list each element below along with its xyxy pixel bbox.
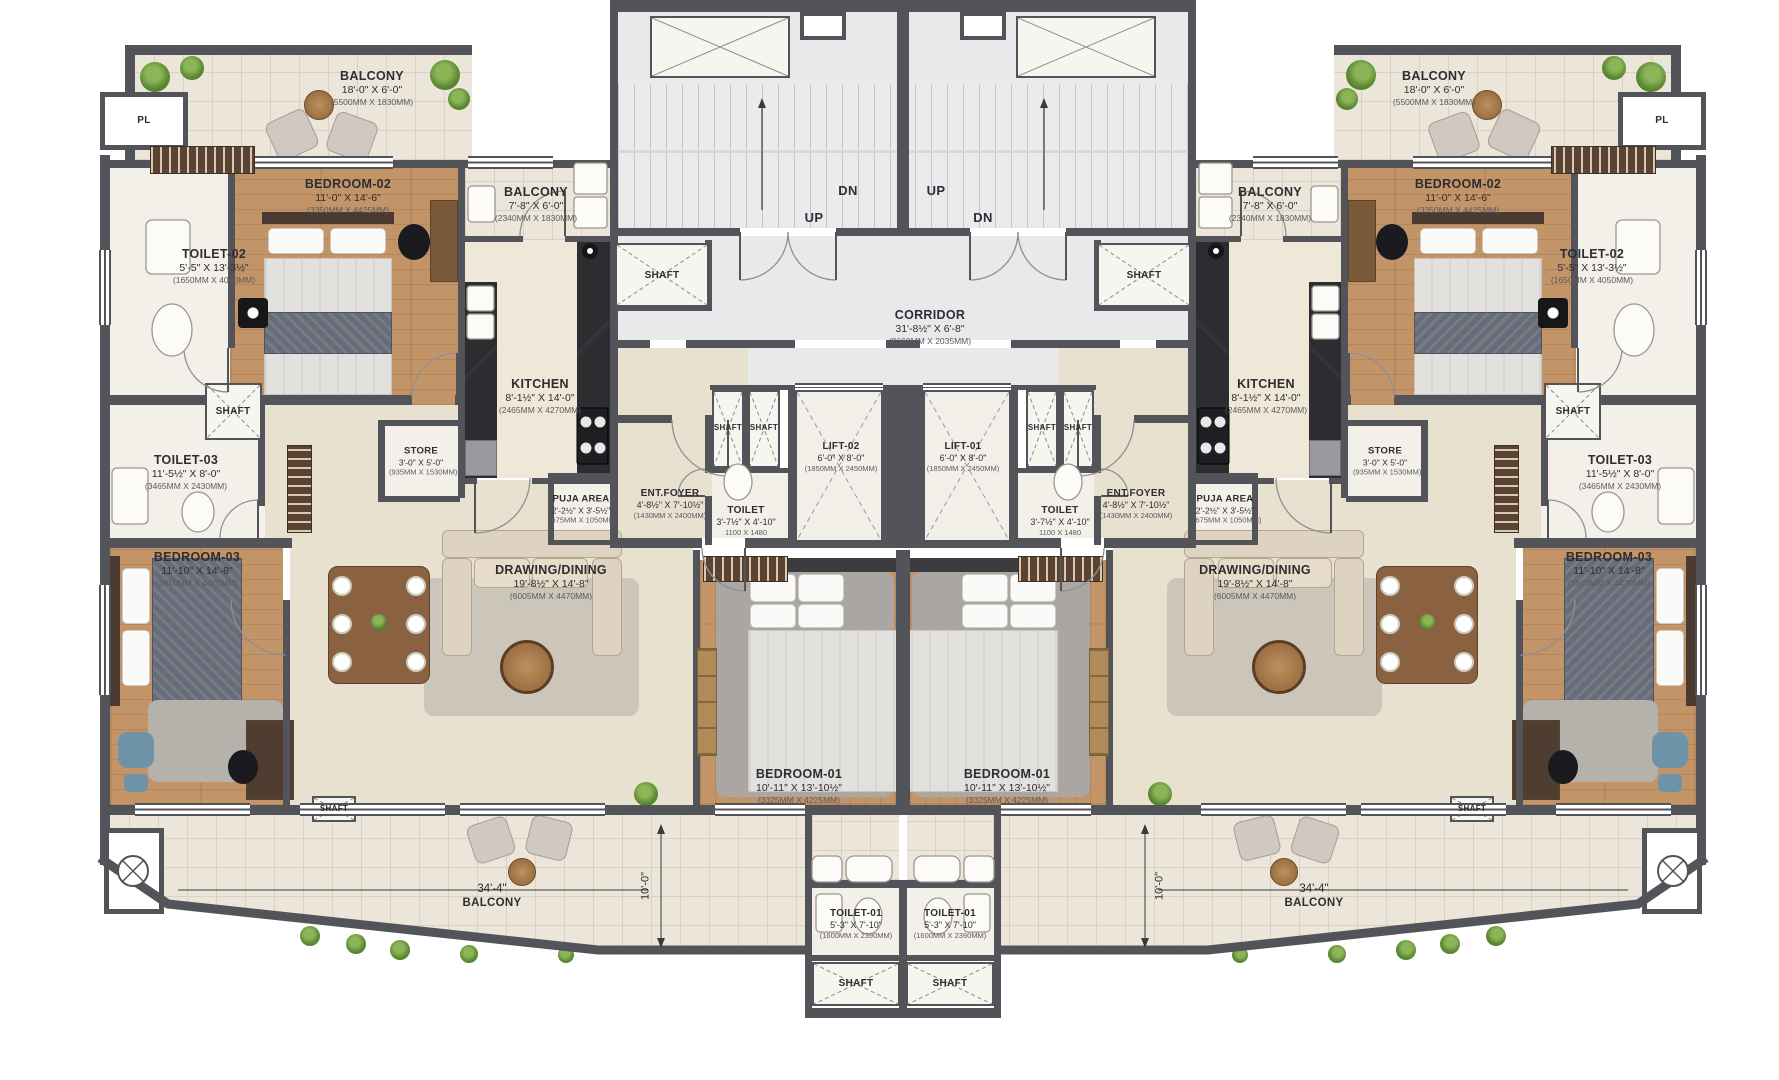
plate (332, 614, 352, 634)
window (460, 803, 605, 816)
wall (1329, 478, 1341, 484)
wall (1194, 473, 1253, 478)
wall (805, 1008, 903, 1018)
room-dims: 5'-5" X 13'-3½" (1551, 262, 1633, 275)
room-name: SHAFT (216, 406, 251, 418)
centerpiece (1419, 614, 1435, 630)
patio-floor (907, 815, 994, 880)
label-depth-dim: 10'-0" (1153, 872, 1166, 900)
label-bedroom3: BEDROOM-0311'-10" X 14'-8"(3610MM X 4470… (154, 550, 240, 588)
pillow (1656, 630, 1684, 686)
room-mm: (6005MM X 4470MM) (1199, 591, 1311, 601)
label-toilet3: TOILET-0311'-5½" X 8'-0"(3465MM X 2430MM… (145, 453, 227, 491)
room-mm: (1430MM X 2400MM) (1100, 511, 1173, 520)
desk-chair (228, 750, 258, 784)
plant (430, 60, 460, 90)
round-table (304, 90, 334, 120)
room-dims: 11'-5½" X 8'-0" (1579, 468, 1661, 481)
room-name: TOILET-02 (173, 247, 255, 262)
wall (1514, 538, 1706, 548)
room-name: KITCHEN (499, 377, 581, 392)
apartment-unit: BALCONY18'-0" X 6'-0"(5500MM X 1830MM) B… (0, 0, 903, 1080)
room-name: SHAFT (645, 270, 680, 282)
label-shaft-small: SHAFT (750, 423, 778, 433)
machine-box (800, 12, 846, 40)
room-mm: (3325MM X 4225MM) (756, 795, 842, 805)
room-dims: 10'-11" X 13'-10½" (964, 782, 1050, 795)
room-dims: 8'-1½" X 14'-0" (1225, 392, 1307, 405)
wall (1066, 228, 1188, 236)
room-dims: 8'-1½" X 14'-0" (499, 392, 581, 405)
wall (710, 468, 790, 473)
room-name: TOILET-01 (914, 908, 987, 920)
plate (332, 652, 352, 672)
room-name: PUJA AREA (1193, 493, 1257, 505)
stair-treads (618, 84, 897, 228)
lobby-floor (748, 348, 903, 388)
pillow (962, 604, 1008, 628)
stair-mid-landing (909, 150, 1188, 153)
wardrobe (1018, 556, 1103, 582)
bed-throw (1414, 312, 1542, 354)
plate (332, 576, 352, 596)
wall (903, 0, 909, 235)
bush (1440, 934, 1460, 954)
bush (460, 945, 478, 963)
wall (805, 815, 812, 1015)
plant (1346, 60, 1376, 90)
label-shaft-corridor: SHAFT (1127, 270, 1162, 282)
room-dims: 7'-8" X 6'-0" (495, 200, 577, 213)
bed-throw (264, 312, 392, 354)
wall (465, 236, 523, 242)
window (1413, 156, 1568, 169)
room-mm: (6005MM X 4470MM) (495, 591, 607, 601)
room-name: BALCONY (331, 69, 413, 84)
wardrobe (150, 146, 255, 174)
wall (903, 1008, 1001, 1018)
room-dims: 3'-0" X 5'-0" (389, 457, 453, 467)
wall (785, 0, 903, 10)
lift-cabin (795, 390, 883, 542)
plant (1636, 62, 1666, 92)
room-name: BEDROOM-02 (305, 177, 391, 192)
label-ent-foyer: ENT.FOYER4'-8½" X 7'-10½"(1430MM X 2400M… (634, 488, 707, 520)
label-store: STORE3'-0" X 5'-0"(935MM X 1530MM) (1353, 445, 1417, 476)
room-name: BEDROOM-01 (756, 767, 842, 782)
room-name: TOILET (1030, 505, 1089, 517)
room-name: PUJA AREA (549, 493, 613, 505)
wall (1421, 420, 1428, 502)
label-pl: PL (137, 115, 150, 127)
bush (558, 947, 574, 963)
label-shaft-small: SHAFT (1028, 423, 1056, 433)
pillow (750, 604, 796, 628)
room-mm: (675MM X 1050MM) (1193, 515, 1257, 524)
room-mm: (3350MM X 4425MM) (1415, 205, 1501, 215)
pillow (1482, 228, 1538, 254)
room-name: SHAFT (1458, 804, 1486, 814)
plate (406, 614, 426, 634)
label-shaft-toilet3: SHAFT (1556, 406, 1591, 418)
label-shaft-balcony: SHAFT (1458, 804, 1486, 814)
room-name: SHAFT (933, 978, 968, 990)
bush (300, 926, 320, 946)
pillow (1010, 604, 1056, 628)
room-mm: (3350MM X 4425MM) (305, 205, 391, 215)
wall (618, 228, 740, 236)
wall (903, 340, 920, 348)
label-shaft-bottom: SHAFT (933, 978, 968, 990)
room-name: DRAWING/DINING (1199, 563, 1311, 578)
wall (903, 0, 1021, 10)
wall (458, 160, 465, 480)
wall (897, 0, 903, 235)
room-name: BEDROOM-03 (154, 550, 240, 565)
label-puja: PUJA AREA2'-2½" X 3'-5½"(675MM X 1050MM) (1193, 493, 1257, 524)
bush (346, 934, 366, 954)
wall (1196, 236, 1241, 242)
stair-landing (650, 16, 790, 78)
duct-box (1642, 828, 1702, 914)
label-bedroom1: BEDROOM-0110'-11" X 13'-10½"(3325MM X 42… (964, 767, 1050, 805)
plate (1454, 652, 1474, 672)
wall (1283, 236, 1341, 242)
wall (903, 228, 970, 236)
wall (1134, 415, 1196, 423)
wall (1194, 540, 1253, 545)
label-depth-dim: 10'-0" (639, 872, 652, 900)
sliding-wardrobe (1089, 648, 1109, 756)
room-name: BALCONY (463, 896, 522, 910)
label-shaft-small: SHAFT (714, 423, 742, 433)
room-name: BALCONY (1285, 896, 1344, 910)
lobby-floor (903, 348, 1058, 388)
room-name: KITCHEN (1225, 377, 1307, 392)
room-name: BALCONY (1393, 69, 1475, 84)
plant (1148, 782, 1172, 806)
ceiling-light (1538, 298, 1568, 328)
wall (553, 540, 612, 545)
room-mm: (2340MM X 1830MM) (1229, 213, 1311, 223)
room-mm: (3610MM X 4470MM) (1566, 578, 1652, 588)
room-mm: (3610MM X 4470MM) (154, 578, 240, 588)
pillow (268, 228, 324, 254)
label-balcony-top: BALCONY18'-0" X 6'-0"(5500MM X 1830MM) (331, 69, 413, 107)
sliding-wardrobe (697, 648, 717, 756)
label-bedroom1: BEDROOM-0110'-11" X 13'-10½"(3325MM X 42… (756, 767, 842, 805)
label-toilet2: TOILET-025'-5" X 13'-3½"(1650MM X 4050MM… (1551, 247, 1633, 285)
coffee-table (500, 640, 554, 694)
label-drawing-dining: DRAWING/DINING19'-8½" X 14'-8"(6005MM X … (1199, 563, 1311, 601)
room-mm: (5500MM X 1830MM) (331, 97, 413, 107)
room-mm: (1650MM X 4050MM) (173, 275, 255, 285)
apartment-unit: BALCONY18'-0" X 6'-0"(5500MM X 1830MM) B… (903, 0, 1779, 1080)
stair-mid-landing (618, 150, 897, 153)
window (1556, 803, 1671, 816)
wall (883, 385, 903, 545)
room-name: BEDROOM-01 (964, 767, 1050, 782)
label-shaft-bottom: SHAFT (839, 978, 874, 990)
wall (532, 478, 610, 484)
pillow (1656, 568, 1684, 624)
room-dims: 18'-0" X 6'-0" (1393, 84, 1475, 97)
room-dims: 2'-2½" X 3'-5½" (1193, 505, 1257, 515)
wall (836, 228, 903, 236)
label-toilet1: TOILET-015'-3" X 7'-10"(1600MM X 2390MM) (914, 908, 987, 940)
lift-cabin (923, 390, 1011, 542)
wardrobe (703, 556, 788, 582)
room-name: TOILET-03 (145, 453, 227, 468)
wall (1341, 160, 1348, 480)
room-name: SHAFT (750, 423, 778, 433)
bush (1486, 926, 1506, 946)
label-shaft-balcony: SHAFT (320, 804, 348, 814)
wall (705, 415, 712, 473)
room-name: TOILET (716, 505, 775, 517)
room-mm: 1100 X 1480 (1030, 528, 1089, 537)
plant (1602, 56, 1626, 80)
room-dims: 2'-2½" X 3'-5½" (549, 505, 613, 515)
wardrobe (1494, 445, 1519, 533)
label-balcony-small: BALCONY7'-8" X 6'-0"(2340MM X 1830MM) (495, 185, 577, 223)
sofa-arm (1334, 558, 1364, 656)
room-dims: 5'-5" X 13'-3½" (173, 262, 255, 275)
room-name: PL (137, 115, 150, 127)
room-name: TOILET-02 (1551, 247, 1633, 262)
label-pl: PL (1655, 115, 1668, 127)
label-toilet2: TOILET-025'-5" X 13'-3½"(1650MM X 4050MM… (173, 247, 255, 285)
room-dims: 11'-0" X 14'-6" (305, 192, 391, 205)
wall (1346, 420, 1421, 426)
room-dims: 3'-7½" X 4'-10" (1030, 517, 1089, 528)
floor-plan: BALCONY18'-0" X 6'-0"(5500MM X 1830MM) B… (0, 0, 1779, 1080)
room-name: SHAFT (1127, 270, 1162, 282)
window (99, 585, 111, 695)
plate (1380, 576, 1400, 596)
wall (125, 45, 472, 55)
plate (1454, 614, 1474, 634)
accent-chair (118, 732, 154, 768)
wall (903, 880, 994, 888)
room-mm: (1600MM X 2390MM) (914, 931, 987, 940)
svg (925, 392, 1009, 540)
window (468, 156, 553, 169)
lift-door (923, 383, 1011, 392)
svg (797, 392, 881, 540)
plant (140, 62, 170, 92)
room-mm: (675MM X 1050MM) (549, 515, 613, 524)
room-name: BEDROOM-03 (1566, 550, 1652, 565)
room-name: ENT.FOYER (634, 488, 707, 500)
room-dims: 4'-8½" X 7'-10½" (634, 500, 707, 511)
label-drawing-dining: DRAWING/DINING19'-8½" X 14'-8"(6005MM X … (495, 563, 607, 601)
room-dims: 7'-8" X 6'-0" (1229, 200, 1311, 213)
room-name: TOILET-03 (1579, 453, 1661, 468)
desk-chair (1548, 750, 1578, 784)
room-dims: 5'-3" X 7'-10" (820, 920, 893, 931)
room-name: ENT.FOYER (1100, 488, 1173, 500)
dim-value: 10'-0" (1153, 872, 1166, 900)
balcony-bottom-floor (996, 815, 1706, 955)
window (1695, 585, 1707, 695)
label-balcony-top: BALCONY18'-0" X 6'-0"(5500MM X 1830MM) (1393, 69, 1475, 107)
wall (610, 415, 672, 423)
wall (686, 340, 795, 348)
wall (1011, 340, 1120, 348)
accent-chair (1652, 732, 1688, 768)
room-dims: 11'-10" X 14'-8" (154, 565, 240, 578)
room-mm: (1650MM X 4050MM) (1551, 275, 1633, 285)
wall (788, 385, 795, 545)
plant (180, 56, 204, 80)
pillow (1420, 228, 1476, 254)
label-balcony-bottom: 34'-4"BALCONY (463, 882, 522, 910)
wall (553, 473, 612, 478)
ottoman (124, 774, 148, 792)
dim-value: 10'-0" (639, 872, 652, 900)
plate (1454, 576, 1474, 596)
label-kitchen: KITCHEN8'-1½" X 14'-0"(2465MM X 4270MM) (499, 377, 581, 415)
wall (100, 538, 292, 548)
wall (903, 955, 994, 961)
window (238, 156, 393, 169)
room-name: SHAFT (1028, 423, 1056, 433)
plant (448, 88, 470, 110)
wall (1156, 340, 1196, 348)
pillow (122, 630, 150, 686)
wall (610, 538, 702, 548)
dim-value: 34'-4" (463, 882, 522, 896)
room-mm: (2465MM X 4270MM) (1225, 405, 1307, 415)
label-toilet-core: TOILET3'-7½" X 4'-10"1100 X 1480 (716, 505, 775, 537)
room-mm: 1100 X 1480 (716, 528, 775, 537)
room-name: PL (1655, 115, 1668, 127)
wall (812, 880, 903, 888)
room-dims: 3'-0" X 5'-0" (1353, 457, 1417, 467)
room-name: SHAFT (1556, 406, 1591, 418)
room-name: BALCONY (495, 185, 577, 200)
wall (903, 550, 910, 815)
wall (1516, 600, 1523, 805)
stair-landing (1016, 16, 1156, 78)
centerpiece (371, 614, 387, 630)
ottoman (1658, 774, 1682, 792)
lift-door (795, 383, 883, 392)
wall (385, 420, 460, 426)
label-toilet3: TOILET-0311'-5½" X 8'-0"(3465MM X 2430MM… (1579, 453, 1661, 491)
room-mm: (3465MM X 2430MM) (1579, 481, 1661, 491)
label-puja: PUJA AREA2'-2½" X 3'-5½"(675MM X 1050MM) (549, 493, 613, 524)
label-balcony-bottom: 34'-4"BALCONY (1285, 882, 1344, 910)
bush (1232, 947, 1248, 963)
wall (1346, 496, 1421, 502)
room-mm: (5500MM X 1830MM) (1393, 97, 1475, 107)
wall (465, 478, 477, 484)
pillow (122, 568, 150, 624)
bed-headboard (110, 556, 120, 706)
wall (812, 955, 903, 961)
round-table (1472, 90, 1502, 120)
label-toilet1: TOILET-015'-3" X 7'-10"(1600MM X 2390MM) (820, 908, 893, 940)
room-mm: (2340MM X 1830MM) (495, 213, 577, 223)
stair-treads (909, 84, 1188, 228)
wall (1104, 538, 1196, 548)
room-name: BEDROOM-02 (1415, 177, 1501, 192)
plant (634, 782, 658, 806)
window (99, 250, 111, 325)
room-name: SHAFT (320, 804, 348, 814)
room-name: BALCONY (1229, 185, 1311, 200)
pillow (798, 604, 844, 628)
room-dims: 19'-8½" X 14'-8" (1199, 578, 1311, 591)
wall (378, 420, 385, 502)
desk-chair (1376, 224, 1408, 260)
plate (1380, 652, 1400, 672)
window (135, 803, 250, 816)
wardrobe (287, 445, 312, 533)
wall (565, 236, 610, 242)
room-mm: (2465MM X 4270MM) (499, 405, 581, 415)
svg (1018, 18, 1154, 76)
room-dims: 18'-0" X 6'-0" (331, 84, 413, 97)
plant (1336, 88, 1358, 110)
label-shaft-toilet3: SHAFT (216, 406, 251, 418)
room-dims: 3'-7½" X 4'-10" (716, 517, 775, 528)
room-mm: (3465MM X 2430MM) (145, 481, 227, 491)
room-name: SHAFT (839, 978, 874, 990)
bush (390, 940, 410, 960)
pillow (962, 574, 1008, 602)
label-bedroom3: BEDROOM-0311'-10" X 14'-8"(3610MM X 4470… (1566, 550, 1652, 588)
room-name: SHAFT (1064, 423, 1092, 433)
room-dims: 10'-11" X 13'-10½" (756, 782, 842, 795)
desk-chair (398, 224, 430, 260)
wall (896, 550, 903, 815)
plate (1380, 614, 1400, 634)
plate (406, 652, 426, 672)
plate (406, 576, 426, 596)
bush (1396, 940, 1416, 960)
room-dims: 5'-3" X 7'-10" (914, 920, 987, 931)
label-ent-foyer: ENT.FOYER4'-8½" X 7'-10½"(1430MM X 2400M… (1100, 488, 1173, 520)
wall (886, 340, 903, 348)
wall (994, 815, 1001, 1015)
room-name: SHAFT (714, 423, 742, 433)
room-dims: 11'-5½" X 8'-0" (145, 468, 227, 481)
room-name: DRAWING/DINING (495, 563, 607, 578)
window (1253, 156, 1338, 169)
svg (652, 18, 788, 76)
window (1695, 250, 1707, 325)
room-mm: (3325MM X 4225MM) (964, 795, 1050, 805)
desk (1348, 200, 1376, 282)
machine-box (960, 12, 1006, 40)
room-name: STORE (389, 445, 453, 457)
fridge (1309, 440, 1341, 476)
room-name: STORE (1353, 445, 1417, 457)
label-shaft-corridor: SHAFT (645, 270, 680, 282)
wall (1196, 478, 1274, 484)
wall (1334, 45, 1681, 55)
patio-floor (812, 815, 899, 880)
wall (1016, 468, 1096, 473)
room-mm: (1600MM X 2390MM) (820, 931, 893, 940)
sofa-arm (442, 558, 472, 656)
dim-value: 34'-4" (1285, 882, 1344, 896)
wall (385, 496, 460, 502)
kitchen-counter (1196, 240, 1229, 478)
